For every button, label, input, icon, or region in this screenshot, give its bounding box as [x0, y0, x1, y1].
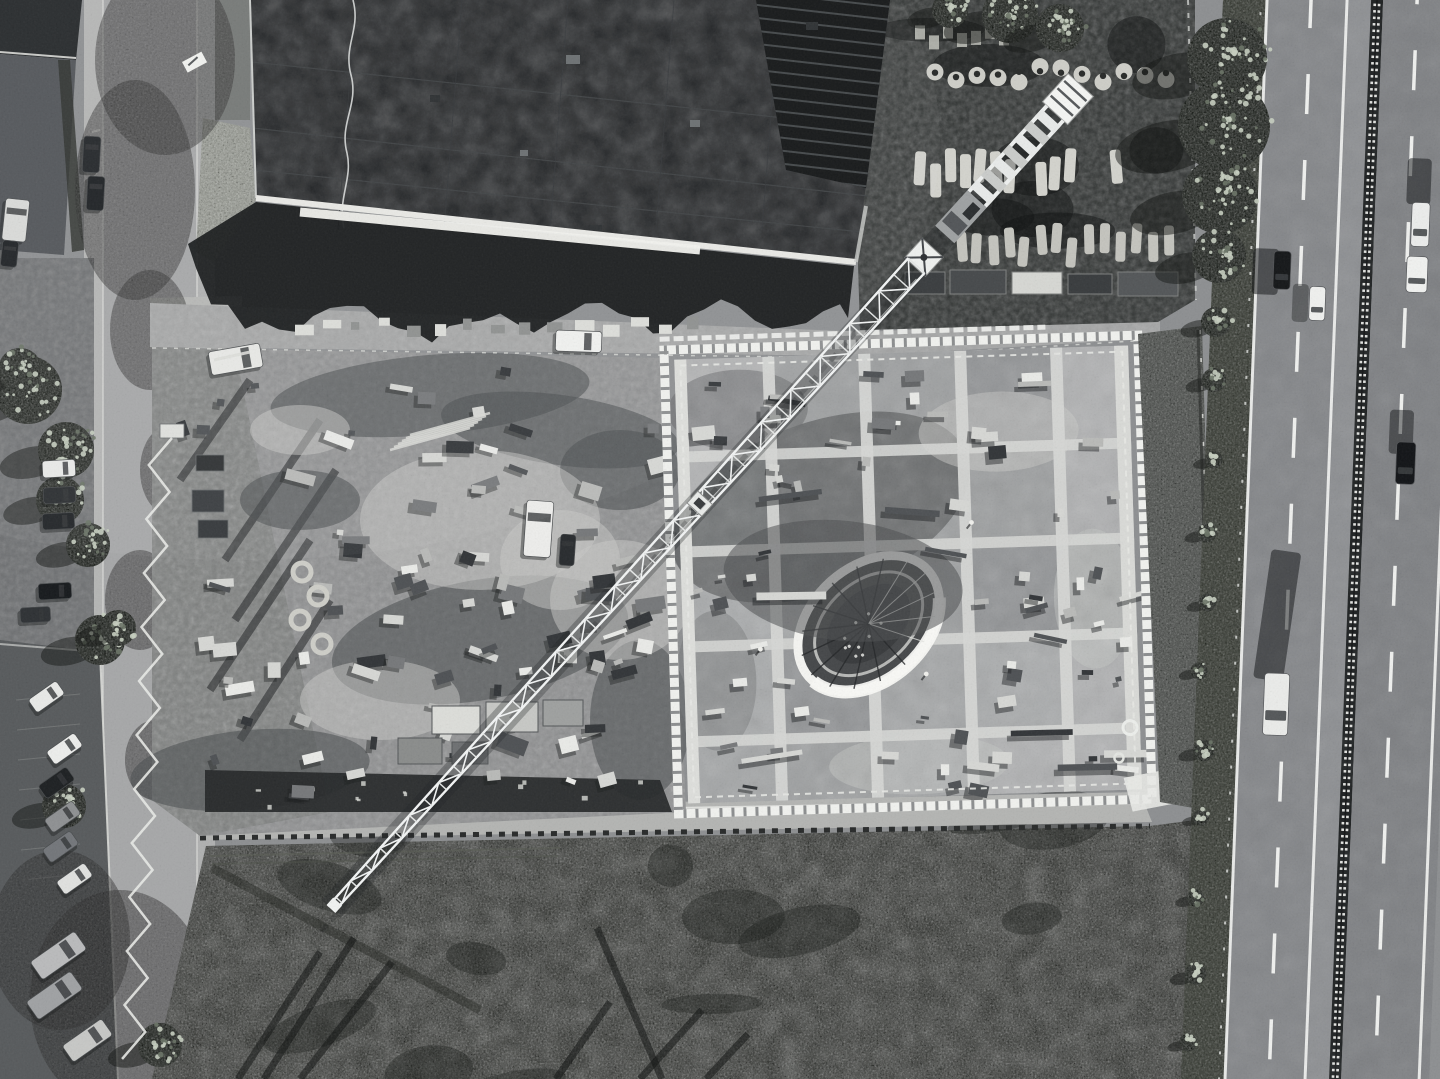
- construction-site-aerial-scene: [0, 0, 1440, 1079]
- aerial-drone-photo: [0, 0, 1440, 1079]
- film-grain: [0, 0, 1440, 1079]
